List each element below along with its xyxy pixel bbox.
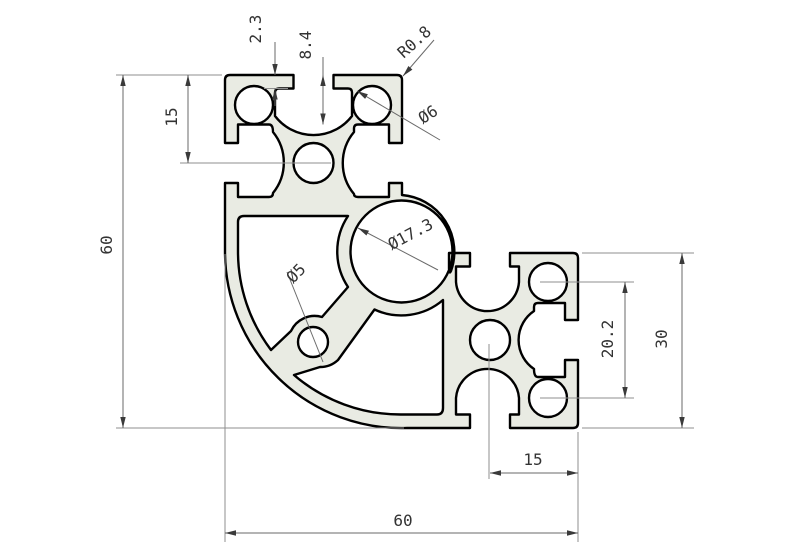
- arrowhead: [225, 530, 236, 535]
- arrowhead: [622, 282, 627, 293]
- dim-label-arm-width: 30: [652, 329, 671, 348]
- arrowhead: [272, 64, 277, 75]
- arrowhead: [185, 152, 190, 163]
- dim-label-core-bore: Ø17.3: [385, 214, 436, 253]
- dim-label-width: 60: [393, 511, 412, 530]
- dim-width-60: 60: [225, 511, 578, 536]
- dim-label-lip: 2.3: [246, 15, 265, 44]
- dim-label-web-hole: Ø5: [283, 260, 310, 287]
- arrowhead: [120, 417, 125, 428]
- arrowhead: [679, 253, 684, 264]
- dim-label-offset-bottom: 15: [523, 450, 542, 469]
- dim-slot-8-4: 8.4: [296, 31, 326, 125]
- arrowhead: [320, 114, 325, 125]
- dim-label-offset-left: 15: [162, 107, 181, 126]
- arrowhead: [403, 66, 412, 76]
- arrowhead: [120, 75, 125, 86]
- dim-height-60: 60: [97, 75, 126, 428]
- arrowhead: [567, 530, 578, 535]
- arrowhead: [679, 417, 684, 428]
- dim-arm-30: 30: [652, 253, 685, 428]
- dim-label-pitch: 20.2: [598, 320, 617, 359]
- arrowhead: [358, 228, 369, 236]
- dim-pitch-20-2: 20.2: [598, 282, 628, 398]
- arrowhead: [567, 470, 578, 475]
- leader-labels: R0.8 Ø6 Ø17.3 Ø5: [283, 22, 442, 287]
- arrowhead: [622, 387, 627, 398]
- dim-offset-15-bottom: 15: [490, 450, 578, 476]
- arrowhead: [490, 470, 501, 475]
- arrowhead: [320, 75, 325, 86]
- dim-offset-15-left: 15: [162, 75, 191, 163]
- dim-label-height: 60: [97, 235, 116, 254]
- profile-outline: [225, 75, 578, 428]
- drawing-canvas: 60 15 2.3 8.4 20.2 30: [0, 0, 804, 557]
- arrowhead: [357, 91, 368, 99]
- dim-label-slot-depth: 8.4: [296, 31, 315, 60]
- dim-label-slot-hole: Ø6: [415, 101, 442, 127]
- arrowhead: [185, 75, 190, 86]
- technical-drawing: 60 15 2.3 8.4 20.2 30: [0, 0, 804, 557]
- dim-label-corner-radius: R0.8: [394, 22, 435, 62]
